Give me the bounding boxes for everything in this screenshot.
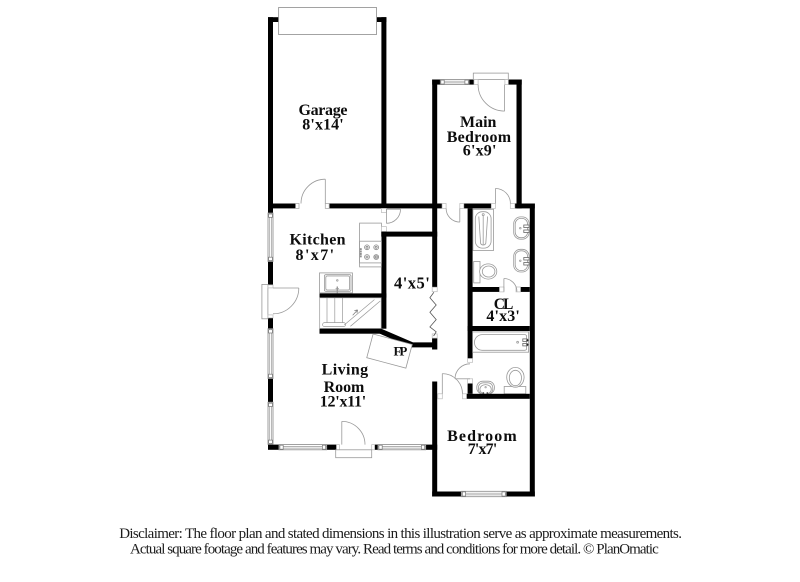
svg-text:Disclaimer: The floor plan and: Disclaimer: The floor plan and stated di… bbox=[119, 526, 682, 542]
svg-text:7'x7': 7'x7' bbox=[468, 441, 498, 458]
svg-text:6'x9': 6'x9' bbox=[463, 143, 497, 160]
svg-text:12'x11': 12'x11' bbox=[320, 394, 367, 411]
svg-text:8'x14': 8'x14' bbox=[302, 117, 344, 134]
svg-text:FP: FP bbox=[394, 344, 408, 359]
svg-text:Actual square footage and feat: Actual square footage and features may v… bbox=[130, 541, 659, 557]
svg-text:4'x5': 4'x5' bbox=[394, 273, 430, 292]
svg-text:4'x3': 4'x3' bbox=[486, 308, 519, 325]
svg-text:Living: Living bbox=[322, 362, 369, 379]
